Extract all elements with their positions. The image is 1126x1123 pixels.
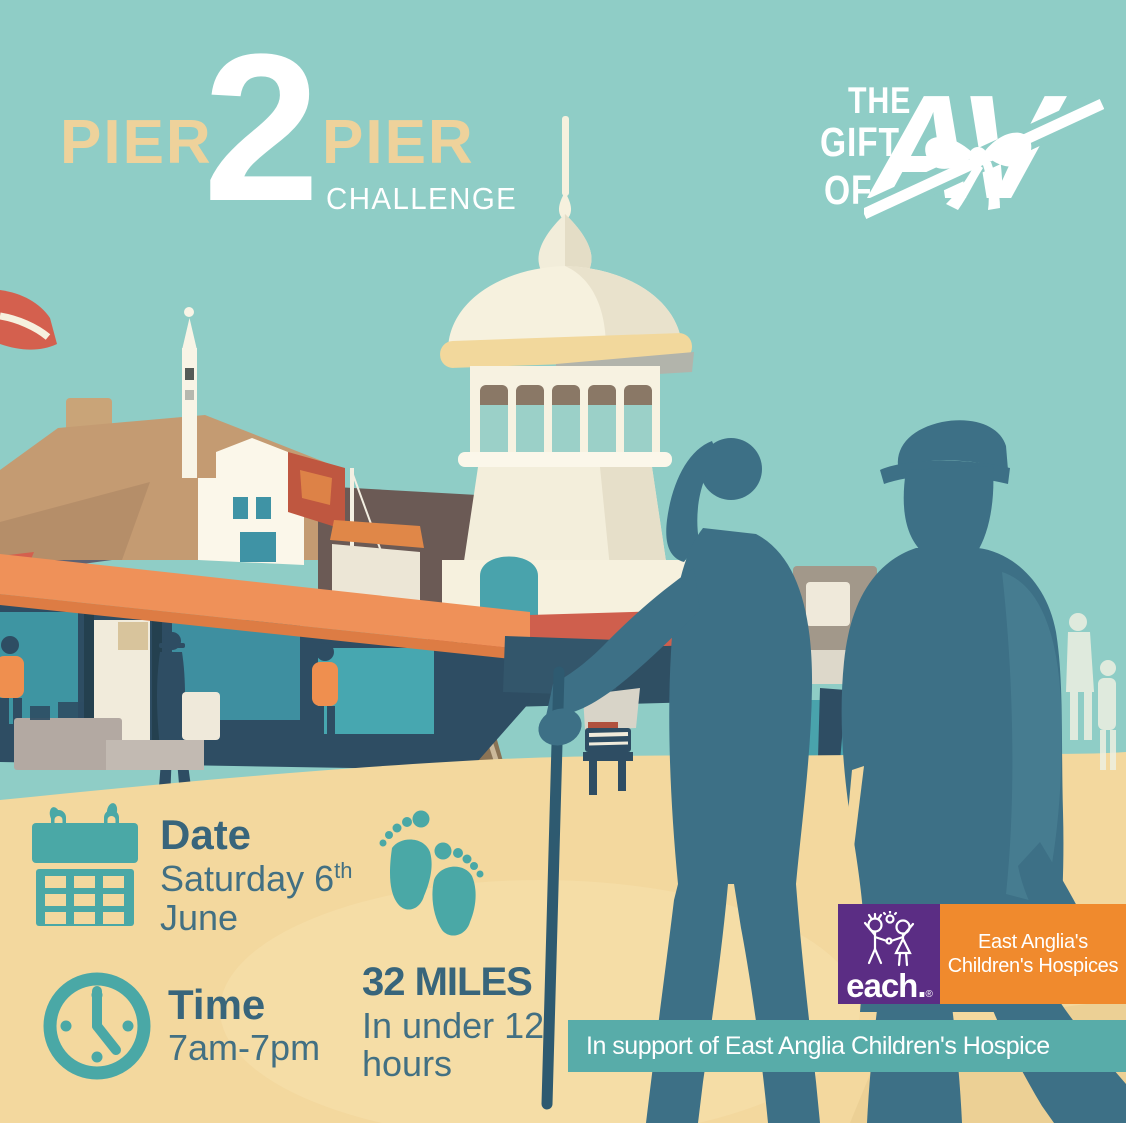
date-value-line2: June — [160, 900, 238, 936]
clock-icon — [42, 970, 152, 1082]
gift-of-av-logo: THE GIFT OF AV — [812, 70, 1122, 225]
each-org-name-line2: Children's Hospices — [948, 954, 1118, 978]
date-value-line1: Saturday 6th — [160, 860, 352, 897]
date-ordinal: th — [334, 858, 352, 883]
event-logo-subtitle: CHALLENGE — [326, 183, 517, 214]
time-label: Time — [168, 984, 265, 1026]
each-org-name-line1: East Anglia's — [978, 930, 1088, 954]
distance-value: 32 MILES — [362, 962, 532, 1002]
av-monogram: AV — [864, 74, 1104, 224]
event-logo-number-2: 2 — [203, 46, 320, 210]
date-day: Saturday 6 — [160, 858, 334, 899]
each-logo-purple-panel: each.® — [838, 904, 940, 1004]
date-label: Date — [160, 814, 251, 856]
each-charity-logo: each.® East Anglia's Children's Hospices — [838, 904, 1126, 1004]
support-banner: In support of East Anglia Children's Hos… — [568, 1020, 1126, 1072]
distance-condition-line2: hours — [362, 1046, 452, 1082]
footprints-icon — [372, 798, 492, 943]
each-logo-orange-panel: East Anglia's Children's Hospices — [940, 904, 1126, 1004]
each-children-icon — [855, 911, 925, 969]
event-logo-pier-right: PIER — [322, 112, 475, 174]
pier2pier-poster: PIER 2 PIER CHALLENGE THE GIFT OF AV — [0, 0, 1126, 1123]
each-wordmark: each.® — [838, 969, 940, 1002]
distance-condition-line1: In under 12 — [362, 1008, 544, 1044]
event-logo-pier-left: PIER — [60, 112, 213, 174]
time-value: 7am-7pm — [168, 1030, 320, 1066]
registered-mark: ® — [926, 989, 932, 1000]
calendar-icon — [32, 810, 138, 926]
